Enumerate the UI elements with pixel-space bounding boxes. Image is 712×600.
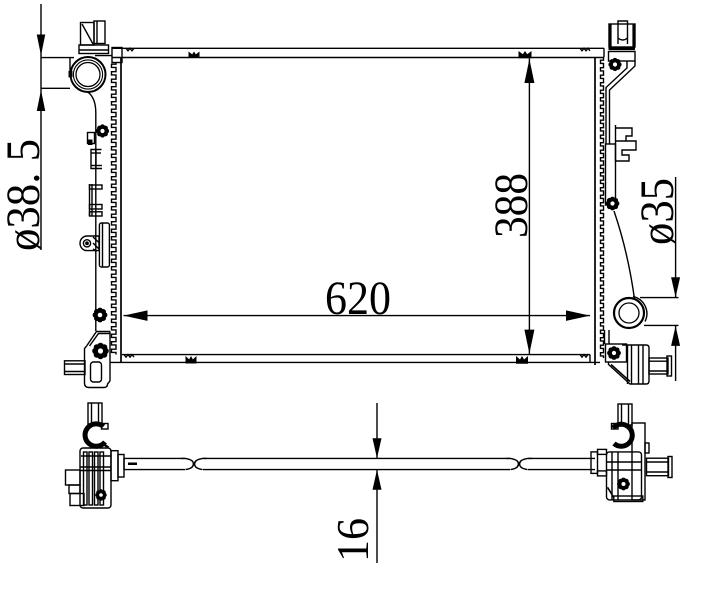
svg-text:620: 620 (325, 272, 391, 325)
svg-text:ø35: ø35 (631, 178, 684, 245)
svg-text:16: 16 (327, 518, 378, 562)
svg-text:ø38. 5: ø38. 5 (0, 139, 50, 251)
svg-text:388: 388 (485, 173, 538, 238)
